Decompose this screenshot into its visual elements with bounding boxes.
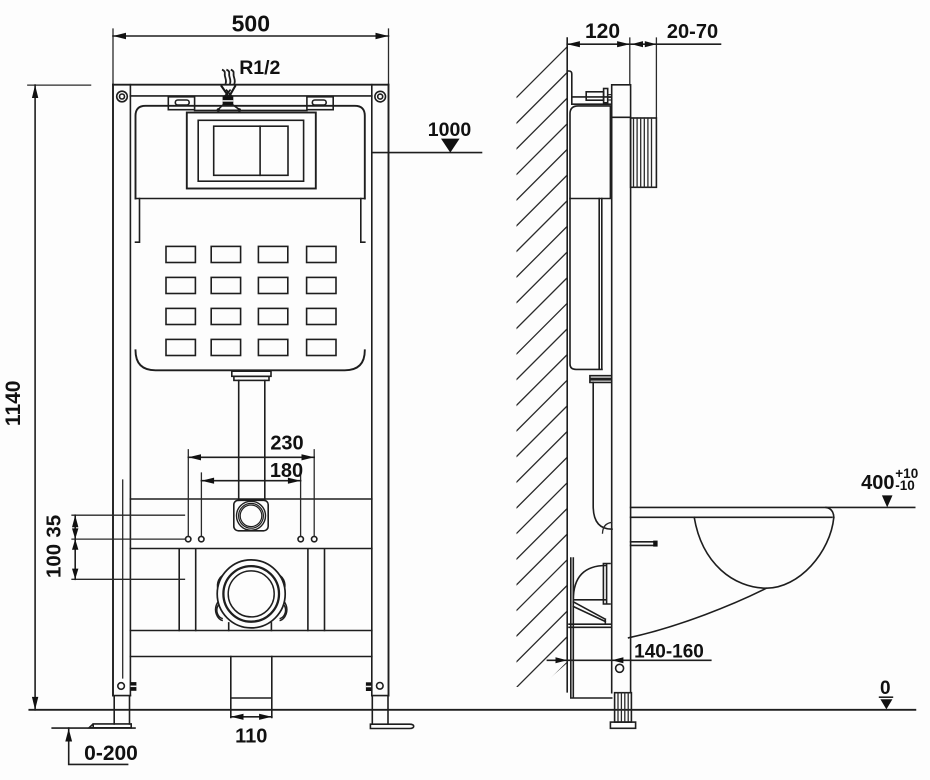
svg-text:0-200: 0-200 [84, 742, 138, 765]
svg-text:1000: 1000 [428, 119, 472, 141]
svg-text:120: 120 [585, 20, 620, 43]
svg-text:110: 110 [235, 726, 267, 748]
svg-text:180: 180 [270, 460, 303, 482]
svg-text:140-160: 140-160 [634, 641, 704, 662]
svg-text:230: 230 [270, 432, 303, 454]
svg-text:400: 400 [861, 472, 894, 494]
svg-text:100: 100 [43, 544, 66, 578]
svg-text:500: 500 [232, 11, 270, 37]
svg-text:35: 35 [43, 515, 66, 538]
svg-text:20-70: 20-70 [667, 21, 718, 43]
svg-text:0: 0 [880, 678, 891, 699]
svg-text:-10: -10 [895, 478, 915, 493]
svg-text:1140: 1140 [2, 381, 25, 427]
svg-text:R1/2: R1/2 [239, 57, 280, 79]
